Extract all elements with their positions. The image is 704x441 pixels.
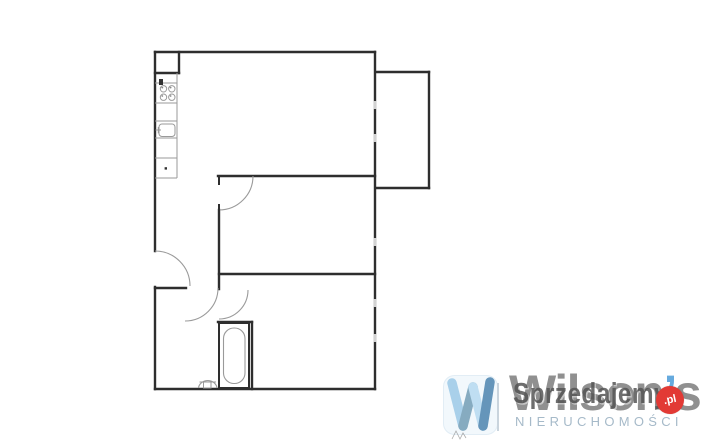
logo-block: Wilson’s NIERUCHOMOŚCI Sprzedajemy .pl [438,368,704,441]
logo-divider [497,383,499,431]
watermark-text: Sprzedajemy [513,380,668,409]
wilsons-logo-icon [443,375,498,435]
bathroom-door [185,288,218,321]
signature-mark [450,429,470,441]
middle-room-door [219,176,253,210]
watermark-pl-badge-label: .pl [662,393,677,407]
rear-room-door [219,290,248,319]
entrance-door [155,251,190,286]
brand-subtitle: NIERUCHOMOŚCI [515,415,683,428]
